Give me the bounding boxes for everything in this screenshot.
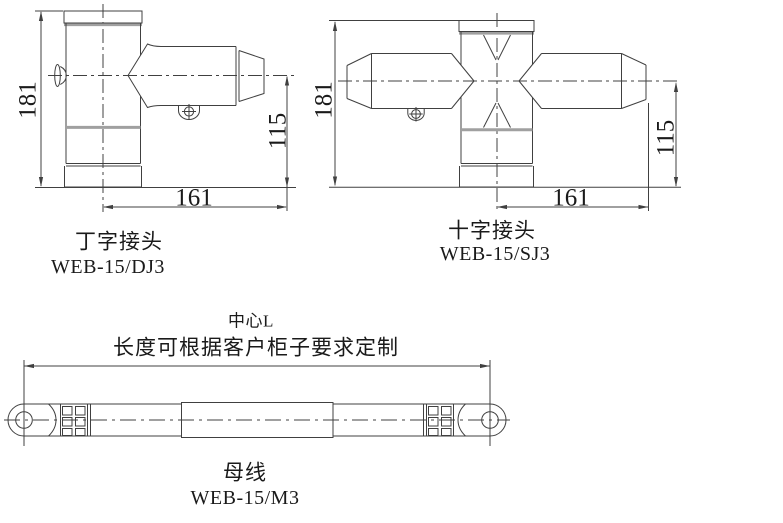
tee-centerlines	[48, 4, 298, 212]
tee-center-height-dimension: 115	[266, 113, 291, 150]
tee-total-height-dimension: 181	[16, 81, 41, 119]
tee-model-number: WEB-15/DJ3	[51, 257, 165, 277]
cross-total-height-dimension: 181	[312, 81, 337, 119]
engineering-drawing-sheet: 181 115 161 丁字接头 WEB-15/DJ3 181 115 161 …	[0, 0, 783, 523]
cross-arm-length-dimension: 161	[552, 186, 590, 211]
cross-caption: 十字接头	[448, 221, 536, 242]
tee-arm-length-dimension: 161	[175, 186, 213, 211]
busbar-center-length-label: 中心L	[228, 313, 274, 330]
tee-dimension-arrows	[39, 11, 289, 209]
tee-arm-lug	[179, 104, 200, 120]
cross-dimension-arrows	[333, 21, 678, 209]
cross-joint-drawing	[329, 13, 681, 212]
busbar-model-number: WEB-15/M3	[191, 488, 300, 508]
cross-centerlines	[338, 13, 679, 212]
busbar-caption: 母线	[223, 463, 267, 484]
cross-arm-lug	[408, 107, 424, 122]
tee-caption: 丁字接头	[75, 232, 163, 253]
tee-dimension-lines	[35, 11, 296, 211]
cross-model-number: WEB-15/SJ3	[440, 244, 551, 264]
busbar-drawing	[4, 360, 510, 446]
cross-center-height-dimension: 115	[654, 120, 679, 157]
tee-joint-drawing	[35, 4, 298, 212]
busbar-custom-length-note: 长度可根据客户柜子要求定制	[113, 338, 399, 359]
